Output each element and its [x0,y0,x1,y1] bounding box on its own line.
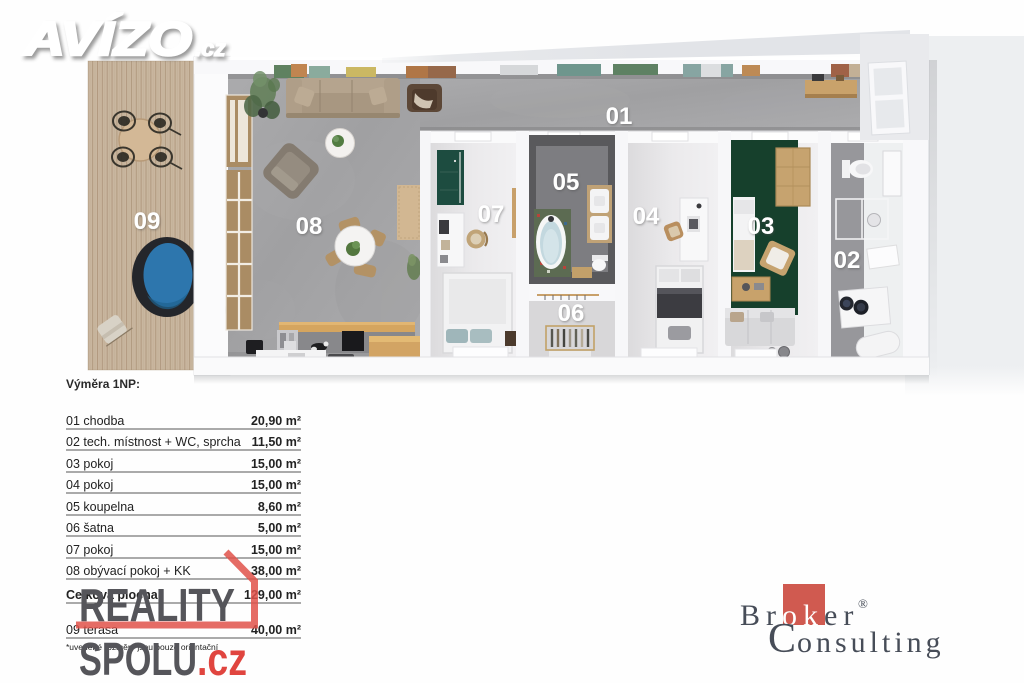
svg-text:01 chodba: 01 chodba [66,414,124,428]
svg-text:15,00 m²: 15,00 m² [251,478,301,492]
svg-text:05 koupelna: 05 koupelna [66,500,134,514]
svg-text:07: 07 [478,201,505,228]
svg-text:08: 08 [296,213,323,240]
svg-text:03: 03 [748,213,775,240]
svg-text:5,00 m²: 5,00 m² [258,521,301,535]
svg-text:.cz: .cz [195,35,226,61]
svg-text:AVÍZO: AVÍZO [23,12,192,65]
svg-text:03 pokoj: 03 pokoj [66,457,113,471]
svg-text:06 šatna: 06 šatna [66,521,114,535]
svg-text:06: 06 [558,300,585,327]
svg-text:02 tech. místnost + WC, sprcha: 02 tech. místnost + WC, sprcha [66,435,241,449]
svg-text:08 obývací pokoj + KK: 08 obývací pokoj + KK [66,564,191,578]
svg-text:8,60 m²: 8,60 m² [258,500,301,514]
svg-text:onsulting: onsulting [797,626,945,659]
svg-text:01: 01 [606,103,633,130]
svg-text:04: 04 [633,203,660,230]
svg-text:C: C [768,616,796,662]
svg-text:40,00 m²: 40,00 m² [251,623,301,637]
svg-text:SPOLU: SPOLU [79,633,197,683]
svg-text:Výměra 1NP:: Výměra 1NP: [66,377,140,391]
svg-text:15,00 m²: 15,00 m² [251,457,301,471]
svg-text:15,00 m²: 15,00 m² [251,543,301,557]
svg-text:09: 09 [134,208,161,235]
svg-text:20,90 m²: 20,90 m² [251,414,301,428]
svg-text:07 pokoj: 07 pokoj [66,543,113,557]
svg-text:05: 05 [553,169,580,196]
svg-text:04 pokoj: 04 pokoj [66,478,113,492]
svg-text:02: 02 [834,247,861,274]
svg-text:®: ® [858,596,868,611]
svg-text:.cz: .cz [197,633,247,683]
svg-text:11,50 m²: 11,50 m² [252,435,301,449]
svg-text:38,00 m²: 38,00 m² [251,564,301,578]
